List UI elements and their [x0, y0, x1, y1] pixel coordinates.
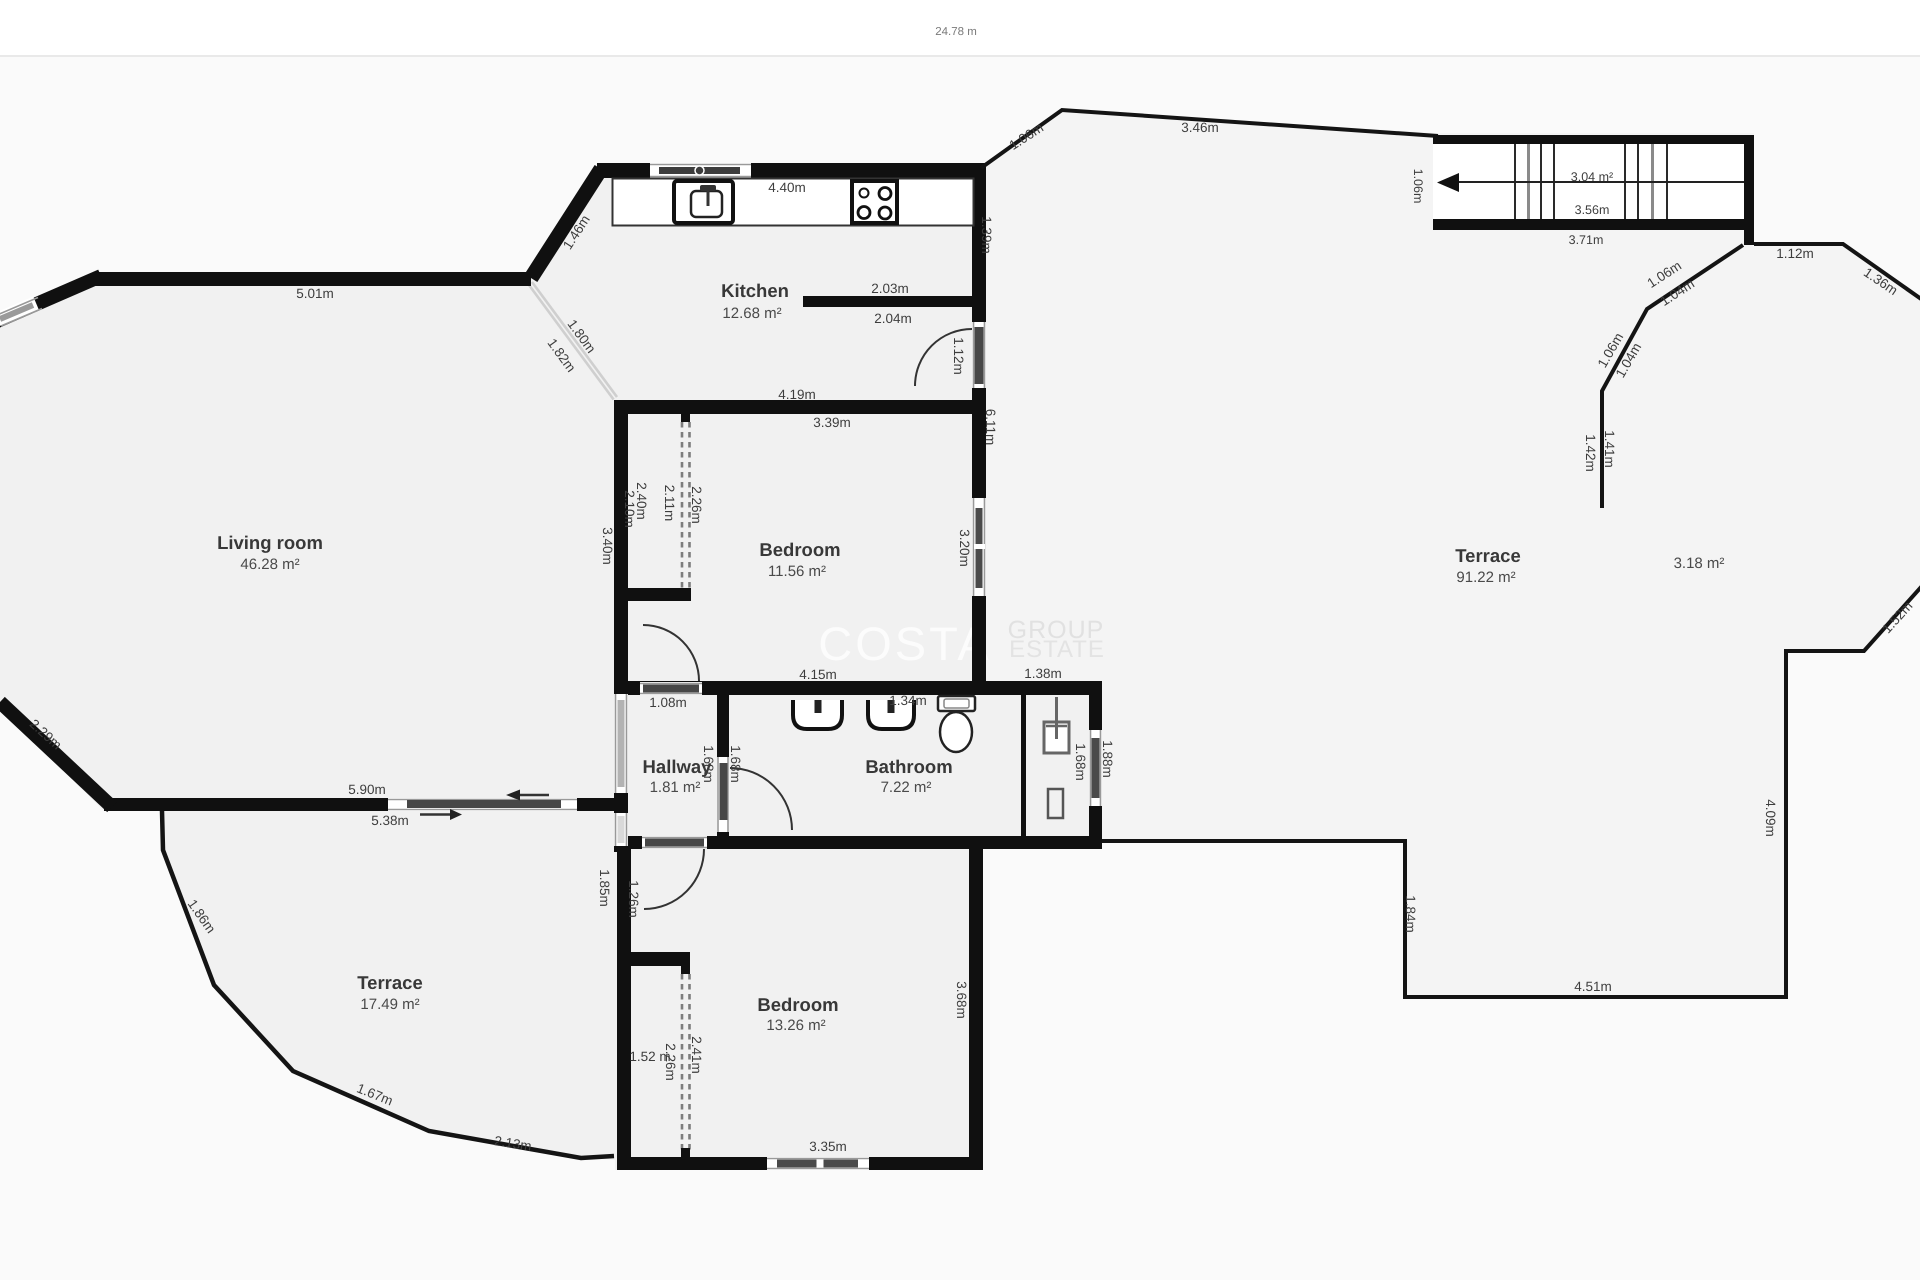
- svg-text:1.81 m²: 1.81 m²: [650, 779, 701, 796]
- svg-text:3.04 m²: 3.04 m²: [1571, 170, 1613, 184]
- svg-text:17.49 m²: 17.49 m²: [360, 996, 419, 1013]
- svg-text:1.08m: 1.08m: [649, 695, 687, 710]
- svg-text:3.35m: 3.35m: [809, 1139, 847, 1154]
- svg-text:Kitchen: Kitchen: [721, 280, 789, 301]
- svg-text:4.51m: 4.51m: [1574, 979, 1612, 994]
- svg-text:1.12m: 1.12m: [1776, 246, 1814, 261]
- svg-text:46.28 m²: 46.28 m²: [240, 556, 299, 573]
- svg-text:Bedroom: Bedroom: [757, 994, 838, 1015]
- svg-text:24.78 m: 24.78 m: [935, 26, 977, 38]
- svg-text:1.88m: 1.88m: [1100, 740, 1115, 778]
- svg-text:1.68m: 1.68m: [728, 745, 743, 783]
- svg-text:2.04m: 2.04m: [874, 311, 912, 326]
- svg-text:91.22 m²: 91.22 m²: [1456, 569, 1515, 586]
- svg-text:1.06m: 1.06m: [1411, 169, 1425, 204]
- svg-text:2.26m: 2.26m: [689, 486, 704, 524]
- svg-text:3.46m: 3.46m: [1181, 120, 1219, 135]
- svg-text:1.84m: 1.84m: [1403, 895, 1418, 933]
- svg-text:3.39m: 3.39m: [813, 415, 851, 430]
- svg-text:11.56 m²: 11.56 m²: [768, 563, 826, 580]
- svg-text:ESTATE: ESTATE: [1009, 636, 1105, 663]
- svg-text:Bedroom: Bedroom: [759, 539, 840, 560]
- svg-text:3.18 m²: 3.18 m²: [1674, 555, 1725, 572]
- svg-text:5.38m: 5.38m: [371, 813, 409, 828]
- svg-text:2.41m: 2.41m: [689, 1036, 704, 1074]
- svg-text:3.40m: 3.40m: [600, 527, 615, 565]
- svg-text:2.26m: 2.26m: [663, 1043, 678, 1081]
- svg-text:1.42m: 1.42m: [1583, 434, 1598, 472]
- svg-text:Terrace: Terrace: [1455, 545, 1520, 566]
- svg-text:1.38m: 1.38m: [1024, 666, 1062, 681]
- svg-text:1.68m: 1.68m: [701, 745, 716, 783]
- svg-text:4.19m: 4.19m: [778, 387, 816, 402]
- svg-text:3.71m: 3.71m: [1569, 233, 1604, 247]
- svg-text:Terrace: Terrace: [357, 972, 422, 993]
- svg-text:1.68m: 1.68m: [1073, 743, 1088, 781]
- svg-text:2.11m: 2.11m: [662, 485, 677, 522]
- svg-text:5.90m: 5.90m: [348, 782, 386, 797]
- svg-text:Bathroom: Bathroom: [865, 756, 952, 777]
- svg-text:1.34m: 1.34m: [889, 693, 927, 708]
- svg-text:12.68 m²: 12.68 m²: [722, 305, 781, 322]
- svg-text:1.85m: 1.85m: [597, 869, 612, 907]
- svg-text:2.10m: 2.10m: [622, 490, 637, 528]
- svg-text:7.22 m²: 7.22 m²: [881, 779, 932, 796]
- svg-text:6.11m: 6.11m: [983, 409, 998, 446]
- svg-text:Living room: Living room: [217, 532, 323, 553]
- svg-text:1.41m: 1.41m: [1602, 430, 1617, 468]
- svg-text:4.09m: 4.09m: [1763, 799, 1778, 837]
- svg-text:4.15m: 4.15m: [799, 667, 837, 682]
- svg-text:2.03m: 2.03m: [871, 281, 909, 296]
- svg-text:3.20m: 3.20m: [957, 529, 972, 567]
- svg-text:1.12m: 1.12m: [951, 337, 966, 375]
- svg-text:5.01m: 5.01m: [296, 286, 334, 301]
- svg-text:3.68m: 3.68m: [954, 981, 969, 1019]
- svg-text:3.56m: 3.56m: [1575, 203, 1610, 217]
- svg-text:1.39m: 1.39m: [979, 216, 994, 254]
- svg-text:1.26m: 1.26m: [626, 880, 641, 918]
- svg-text:4.40m: 4.40m: [768, 180, 806, 195]
- svg-text:COSTA: COSTA: [818, 617, 991, 670]
- svg-text:13.26 m²: 13.26 m²: [766, 1017, 825, 1034]
